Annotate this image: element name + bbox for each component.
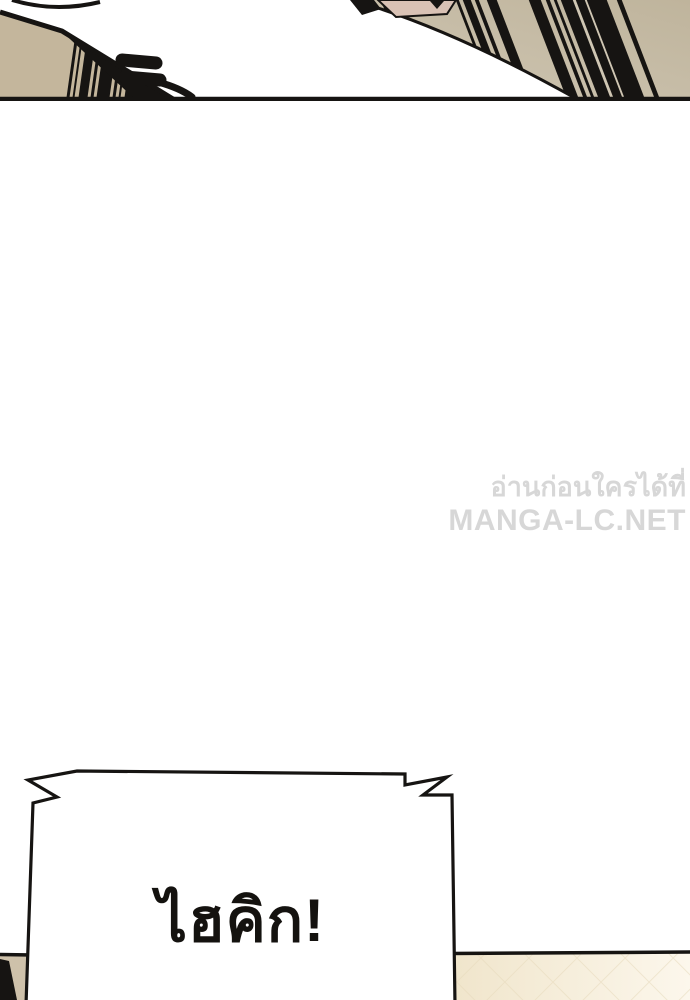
bubble-bottom-arc bbox=[12, 0, 100, 7]
speech-bubble-text: ไฮคิก! bbox=[28, 876, 454, 964]
striped-beam-left bbox=[0, 12, 192, 101]
panel-edge-right bbox=[449, 952, 690, 954]
panel-top-artwork bbox=[0, 0, 690, 101]
bottom-right-background bbox=[449, 952, 690, 1000]
watermark-line1: อ่านก่อนใครได้ที่ bbox=[448, 468, 686, 506]
watermark: อ่านก่อนใครได้ที่ MANGA-LC.NET bbox=[448, 468, 686, 536]
diamond-lattice bbox=[450, 953, 690, 1000]
watermark-line2: MANGA-LC.NET bbox=[448, 506, 686, 536]
light-shape-top bbox=[378, 0, 456, 17]
comic-page: อ่านก่อนใครได้ที่ MANGA-LC.NET ไฮคิก! bbox=[0, 0, 690, 1000]
striped-wall-right bbox=[350, 0, 690, 101]
